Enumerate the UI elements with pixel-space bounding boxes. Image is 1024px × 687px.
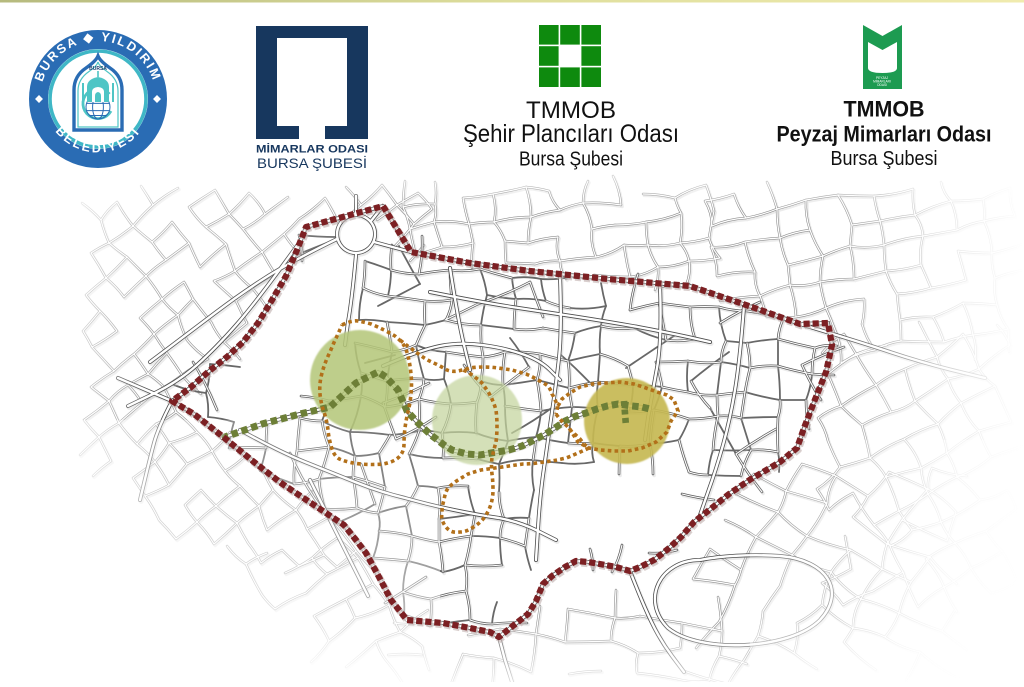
svg-text:ODASI: ODASI [877, 83, 887, 87]
svg-text:BURSA ŞUBESİ: BURSA ŞUBESİ [257, 154, 367, 171]
svg-text:Bursa Şubesi: Bursa Şubesi [519, 149, 623, 171]
svg-text:TMMOB: TMMOB [844, 97, 925, 122]
svg-text:Şehir Plancıları Odası: Şehir Plancıları Odası [463, 120, 679, 148]
svg-text:MİMARLAR ODASI: MİMARLAR ODASI [256, 143, 368, 156]
svg-text:Bursa Şubesi: Bursa Şubesi [831, 148, 938, 170]
svg-text:Peyzaj Mimarları Odası: Peyzaj Mimarları Odası [777, 122, 992, 147]
